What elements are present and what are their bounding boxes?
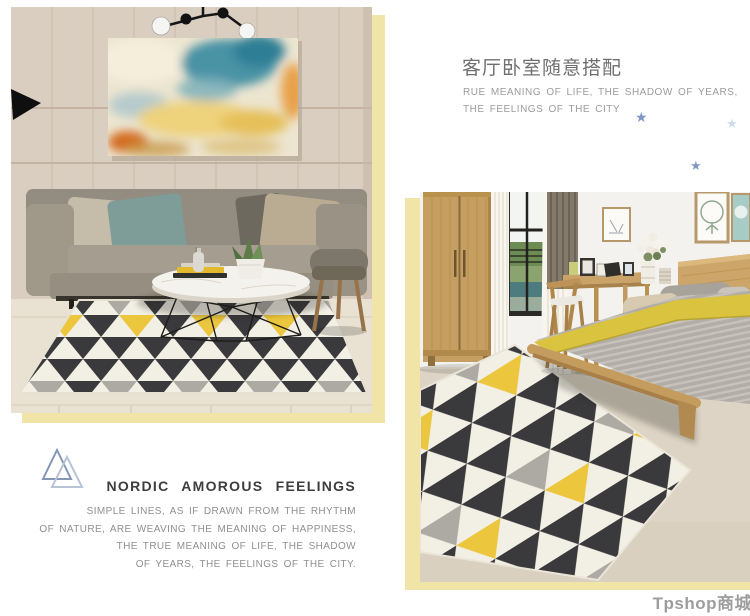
caption-line: THE FEELINGS OF THE CITY [463, 101, 738, 118]
living-room-photo [11, 7, 372, 413]
paragraph-line: SIMPLE LINES, AS IF DRAWN FROM THE RHYTH… [20, 503, 356, 521]
section-title: NORDIC AMOROUS FEELINGS [20, 478, 356, 494]
section-paragraph: SIMPLE LINES, AS IF DRAWN FROM THE RHYTH… [20, 503, 356, 573]
star-icon: ★ [635, 110, 648, 124]
section-heading-cn: 客厅卧室随意搭配 [462, 53, 622, 80]
abstract-painting [96, 35, 305, 161]
star-icon: ★ [726, 117, 738, 130]
paragraph-line: THE TRUE MEANING OF LIFE, THE SHADOW [20, 538, 356, 556]
shop-watermark: Tpshop商城 [653, 589, 750, 614]
page: 客厅卧室随意搭配 RUE MEANING OF LIFE, THE SHADOW… [0, 0, 750, 616]
wardrobe [420, 192, 502, 374]
star-icon: ★ [690, 159, 702, 172]
section-caption: RUE MEANING OF LIFE, THE SHADOW OF YEARS… [463, 84, 738, 118]
paragraph-line: OF YEARS, THE FEELINGS OF THE CITY. [20, 556, 356, 574]
caption-line: RUE MEANING OF LIFE, THE SHADOW OF YEARS… [463, 84, 738, 101]
paragraph-line: OF NATURE, ARE WEAVING THE MEANING OF HA… [20, 521, 356, 539]
bedroom-photo [420, 192, 750, 582]
window [506, 192, 548, 316]
